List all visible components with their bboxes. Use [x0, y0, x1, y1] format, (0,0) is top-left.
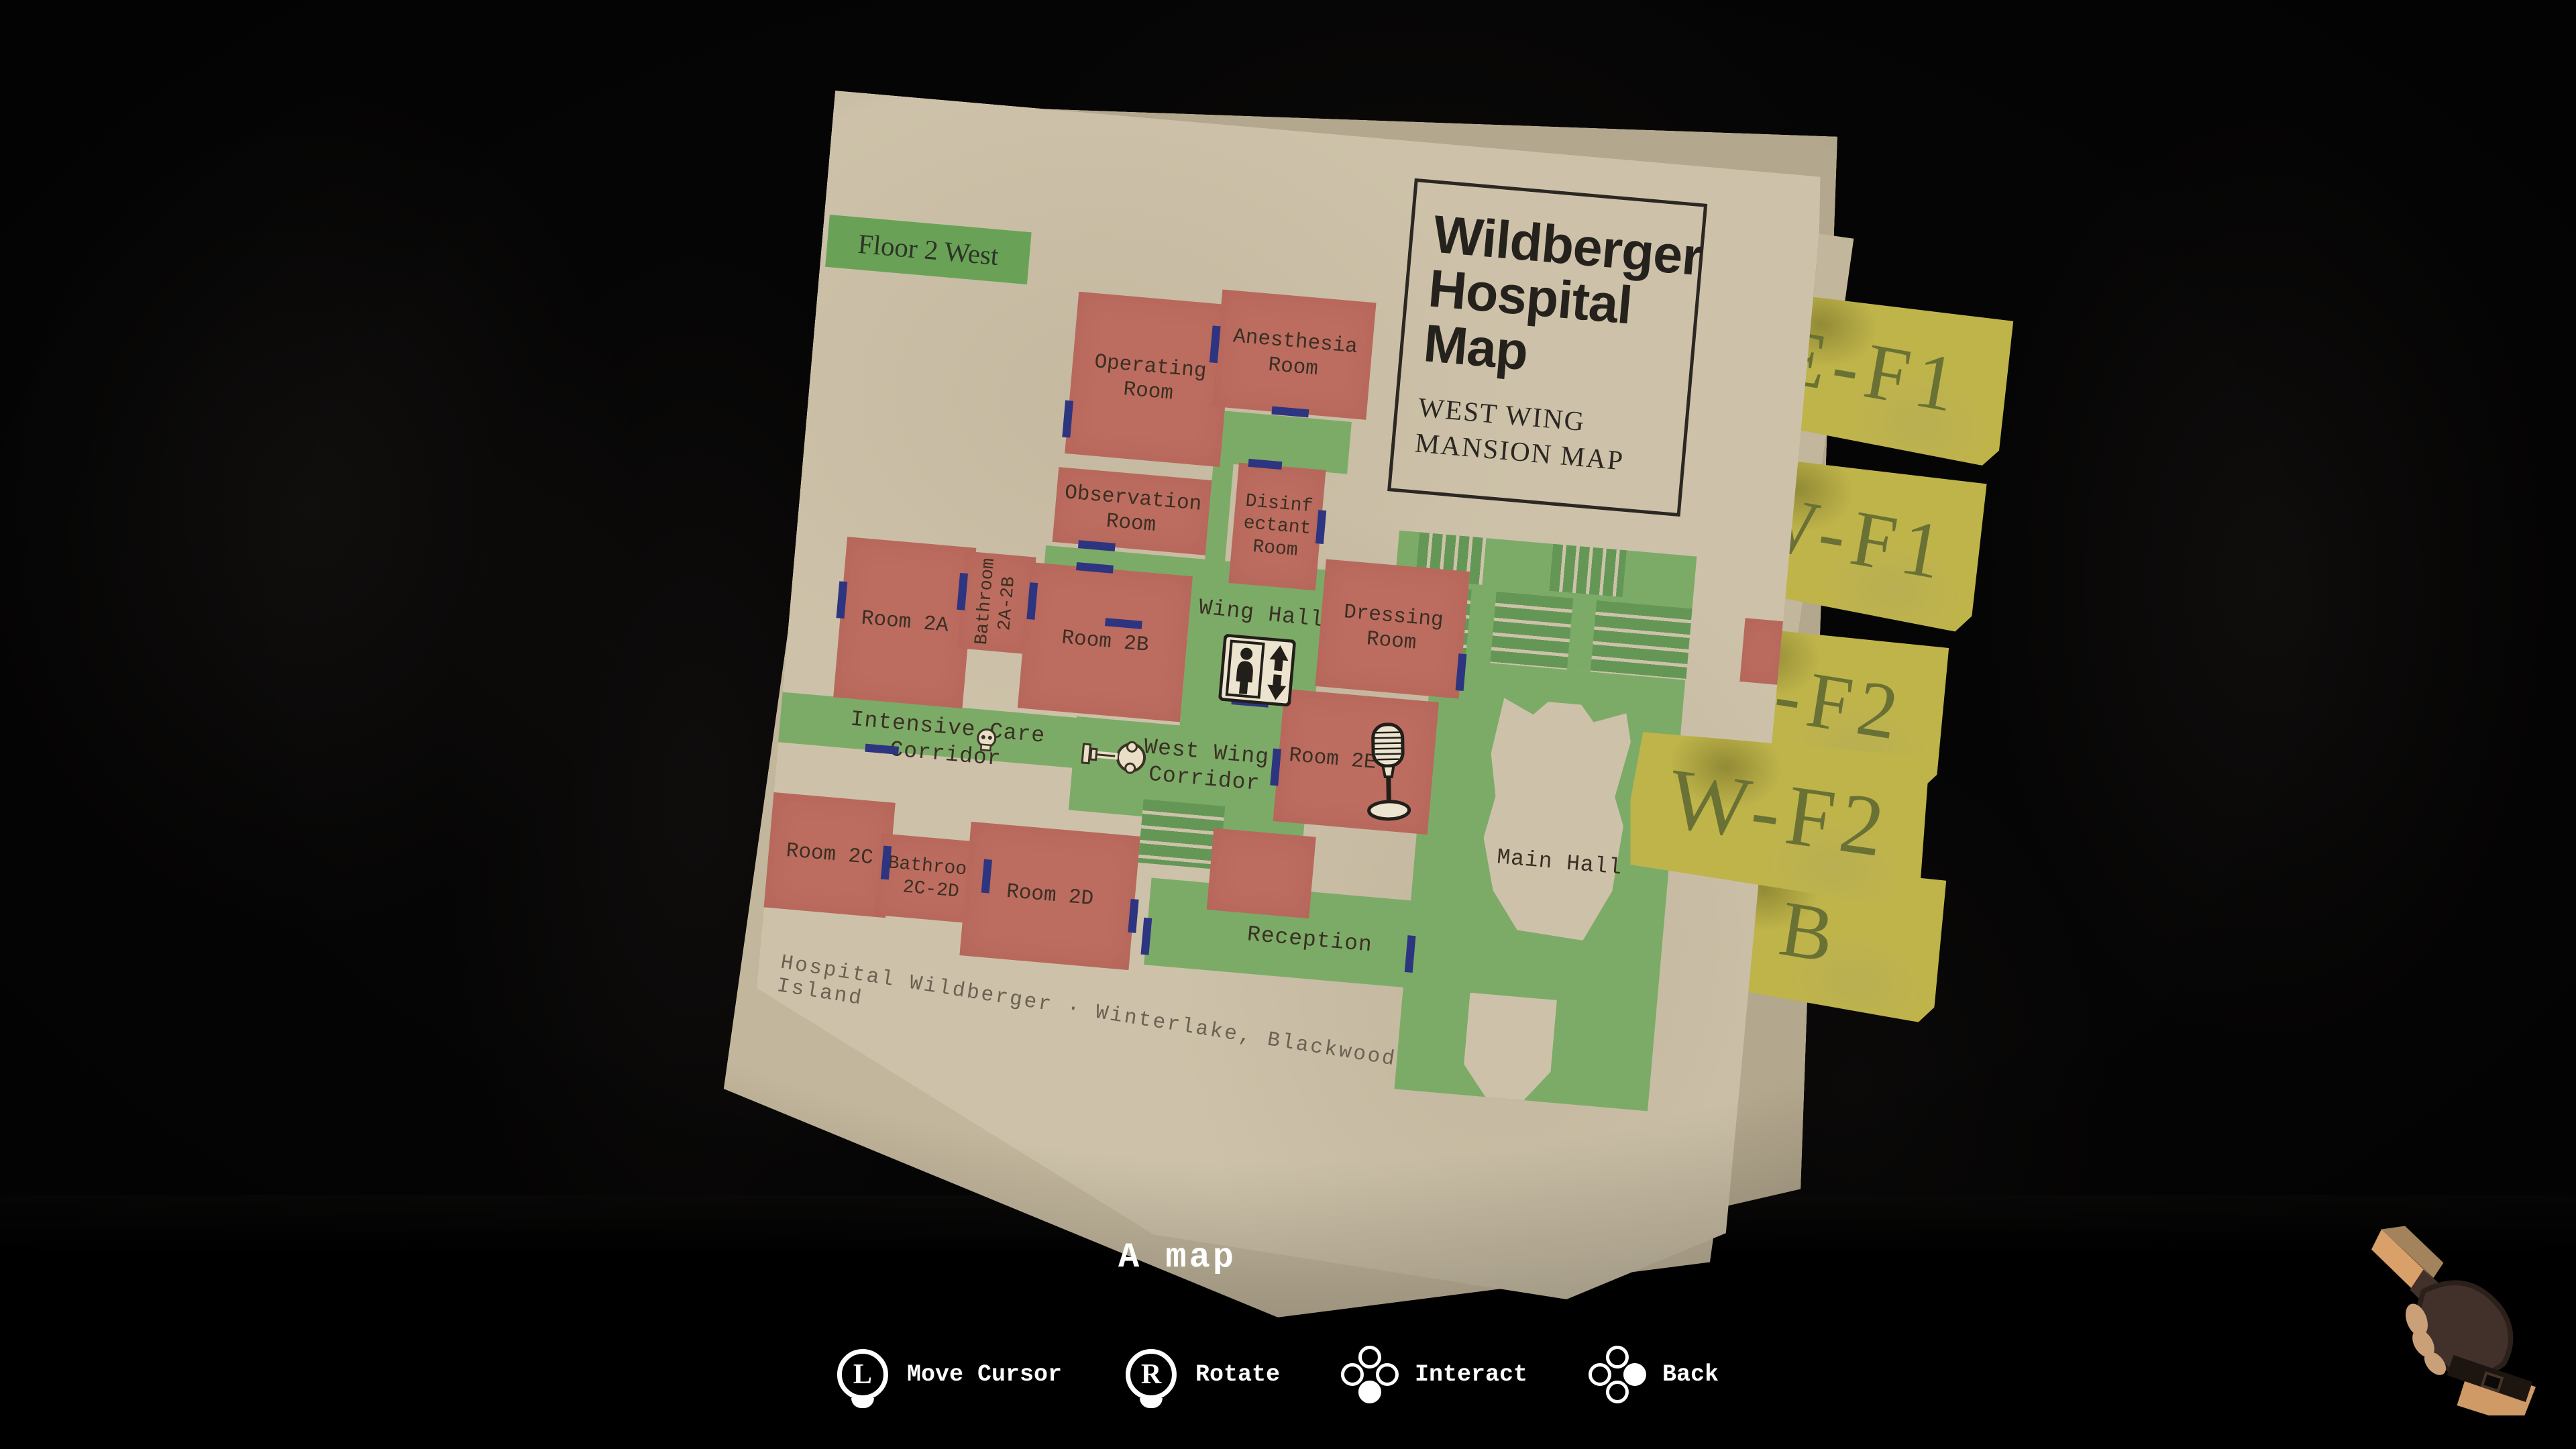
elevator-icon: [1218, 634, 1296, 707]
room-2d: Room 2D: [959, 822, 1140, 970]
stair-run: [1549, 544, 1627, 597]
tab-label: B: [1774, 882, 1847, 981]
map-subtitle: WEST WING MANSION MAP: [1413, 390, 1666, 482]
right-stick-icon: R: [1126, 1349, 1177, 1400]
room-2a: Room 2A: [833, 537, 976, 708]
floor-banner: Floor 2 West: [825, 215, 1032, 284]
control-move-cursor: L Move Cursor: [837, 1349, 1062, 1400]
control-interact: Interact: [1344, 1348, 1527, 1401]
room-dressing: Dressing Room: [1315, 559, 1470, 698]
hand-cursor-icon: [2345, 1214, 2566, 1415]
control-back: Back: [1591, 1348, 1719, 1401]
face-button-bottom-icon: [1344, 1348, 1396, 1401]
room-observation: Observation Room: [1053, 467, 1212, 555]
room-unlabeled: [1207, 828, 1316, 918]
controls-bar: L Move Cursor R Rotate Interact Back: [837, 1348, 1719, 1401]
map-title-box: Wildberger Hospital Map WEST WING MANSIO…: [1387, 178, 1707, 517]
main-hall-notch: [1461, 993, 1557, 1103]
skull-icon: [973, 727, 1000, 754]
control-label: Interact: [1415, 1361, 1527, 1388]
left-stick-icon: L: [837, 1349, 888, 1400]
room-operating: Operating Room: [1065, 292, 1234, 467]
room-2b: Room 2B: [1018, 562, 1193, 722]
stair-run: [1591, 600, 1693, 680]
microphone-save-icon: [1355, 721, 1424, 823]
stair-run: [1490, 592, 1573, 670]
control-label: Back: [1662, 1361, 1719, 1388]
floor-banner-label: Floor 2 West: [857, 227, 1000, 272]
main-hall-void: [1475, 697, 1633, 943]
room-disinfectant: Disinfectant Room: [1228, 463, 1326, 591]
main-hall: Main Hall: [1394, 658, 1685, 1112]
item-caption: A map: [1118, 1238, 1236, 1277]
key-item-icon: [1077, 732, 1155, 785]
control-label: Rotate: [1195, 1361, 1280, 1388]
tab-label: W-F2: [1663, 749, 1897, 877]
control-label: Move Cursor: [907, 1361, 1062, 1388]
control-rotate: R Rotate: [1126, 1349, 1280, 1400]
room-anesthesia: Anesthesia Room: [1212, 289, 1376, 419]
map-title: Wildberger Hospital Map: [1421, 207, 1682, 391]
face-button-right-icon: [1591, 1348, 1644, 1401]
